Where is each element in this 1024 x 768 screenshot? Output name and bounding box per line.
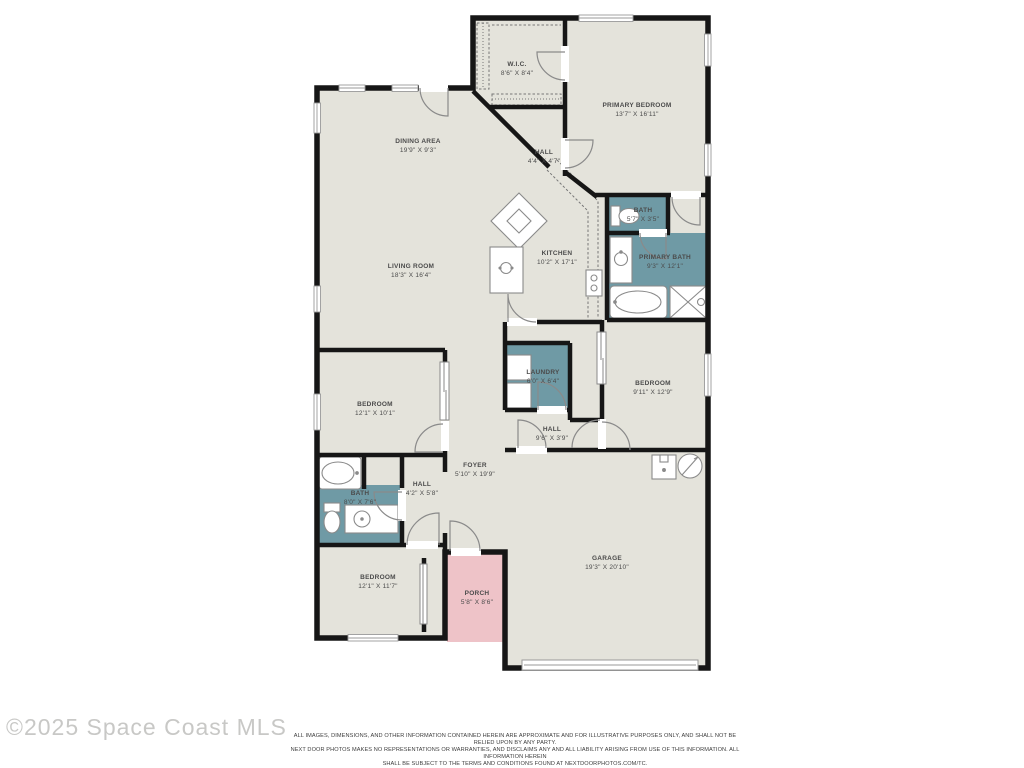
water-heater-icon [652, 455, 676, 479]
disclaimer-line-3: SHALL BE SUBJECT TO THE TERMS AND CONDIT… [287, 761, 743, 768]
window [392, 85, 418, 92]
bedroom3-closet-slider [420, 564, 427, 624]
sink-icon [501, 263, 512, 274]
window [705, 354, 712, 396]
bathtub-icon [610, 286, 667, 318]
window [314, 286, 321, 312]
porch-floor [447, 552, 505, 642]
window [314, 394, 321, 430]
washer-icon [507, 355, 531, 380]
vanity-sink-icon [610, 237, 632, 283]
cooktop-icon [586, 270, 602, 296]
disclaimer-line-1: ALL IMAGES, DIMENSIONS, AND OTHER INFORM… [287, 733, 743, 747]
bedroom2-closet-slider [597, 332, 606, 384]
window [705, 34, 712, 66]
toilet2-icon [324, 503, 340, 533]
watermark: ©2025 Space Coast MLS [6, 714, 287, 741]
bathtub2-icon [319, 457, 361, 489]
shower-icon [670, 286, 706, 318]
vanity2-sink-icon [345, 505, 398, 533]
floorplan-page: W.I.C.8'6" X 8'4"PRIMARY BEDROOM13'7" X … [0, 0, 1024, 768]
window [339, 85, 365, 92]
bedroom1-closet-slider [440, 362, 449, 420]
window [314, 103, 321, 133]
floorplan-drawing [0, 0, 1024, 768]
disclaimer-line-2: NEXT DOOR PHOTOS MAKES NO REPRESENTATION… [287, 747, 743, 761]
window [705, 144, 712, 176]
disclaimer: ALL IMAGES, DIMENSIONS, AND OTHER INFORM… [287, 733, 743, 768]
window [579, 15, 633, 22]
garage-door [522, 660, 698, 670]
hvac-icon [678, 454, 702, 478]
kitchen-sink-counter [490, 247, 523, 293]
dryer-icon [507, 383, 531, 408]
window [348, 635, 398, 642]
